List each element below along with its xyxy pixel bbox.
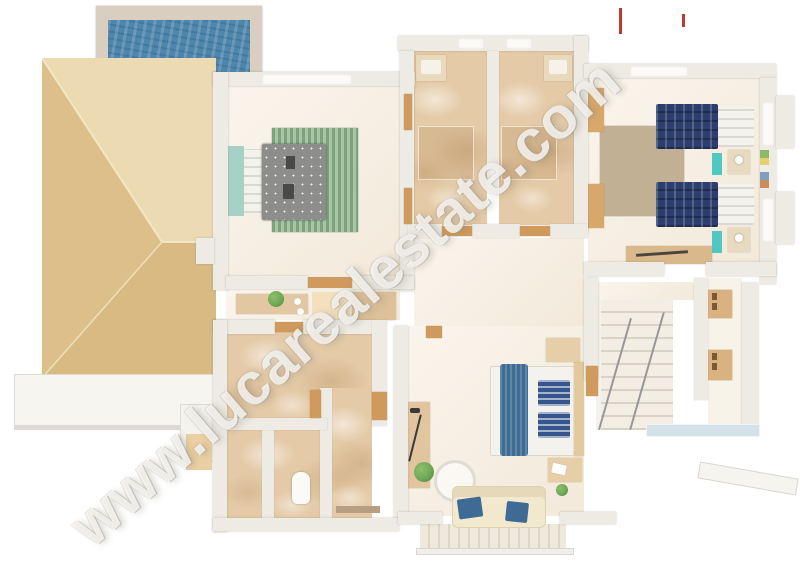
- twin-lamp-2: [735, 234, 743, 242]
- wall-bedroom-bottom-left: [398, 512, 442, 524]
- door-frame-master-bath1: [404, 94, 412, 130]
- twin-dresser-2: [588, 184, 604, 228]
- sofa-pillow-1: [457, 496, 484, 519]
- twin-bed1-pillow: [718, 106, 754, 147]
- balcony-rail: [416, 548, 574, 555]
- desk-plant: [414, 462, 434, 482]
- master-bed-item-2: [283, 184, 294, 199]
- bath1-sink: [421, 60, 441, 74]
- desk-lamp-head: [410, 408, 420, 413]
- wall-bath-bottom-c: [550, 224, 588, 238]
- window-sill-master-left: [196, 238, 214, 264]
- main-nightstand-top: [546, 338, 580, 362]
- wall-bath-partition-1: [262, 428, 274, 518]
- exterior-beam: [697, 461, 798, 495]
- main-bed-pillow-1: [538, 380, 570, 406]
- shower-drain: [336, 506, 380, 513]
- main-bed-headboard: [574, 362, 584, 456]
- door-frame-bath3: [310, 390, 321, 418]
- bathroom5-floor: [332, 388, 372, 518]
- glass-balustrade: [646, 424, 760, 437]
- window-sill-right-2: [776, 192, 794, 244]
- twin-bed1-cover: [656, 104, 718, 149]
- wall-bath-top: [398, 36, 588, 51]
- door-frame-bath2-bottom: [520, 226, 550, 236]
- wall-shelf-2: [708, 350, 732, 380]
- window-sill-right-1: [776, 96, 794, 148]
- wall-master-bottom-left: [226, 276, 308, 289]
- twin-lamp-1: [735, 156, 743, 164]
- twin-bed2-pillow: [718, 184, 754, 225]
- floor-plan-render: www.lucarealestate.com: [0, 0, 800, 563]
- twin-teal-mat-1: [712, 153, 722, 175]
- stair-landing-floor: [598, 282, 694, 300]
- nightstand-plant: [556, 484, 568, 496]
- watermark-accent-dash-1: [619, 8, 622, 34]
- window-right-2: [762, 198, 774, 242]
- main-bed-pillow-2: [538, 412, 570, 438]
- door-frame-main-bedroom: [426, 326, 442, 338]
- door-frame-bath5: [372, 392, 387, 420]
- sofa-pillow-2: [505, 501, 529, 523]
- door-frame-stairwell: [586, 366, 598, 396]
- window-right-1: [762, 102, 774, 146]
- window-bath-top-1: [458, 38, 484, 49]
- wall-bath-partition-2: [320, 388, 332, 518]
- master-bed-item-1: [286, 156, 295, 169]
- wall-twin-bottom-right: [706, 262, 776, 276]
- wall-shelf-1: [708, 290, 732, 318]
- wall-balcony-right: [742, 283, 758, 429]
- wall-master-left: [213, 72, 228, 290]
- bookshelf-right-wall: [760, 150, 769, 188]
- window-master-top: [262, 74, 352, 85]
- wall-stairwell-left: [584, 278, 598, 380]
- main-bed-blue-runner: [500, 364, 528, 456]
- toilet: [292, 472, 310, 504]
- master-bed-pillows: [244, 149, 262, 213]
- wall-bedroom-bottom-right: [560, 512, 616, 524]
- twin-teal-mat-2: [712, 231, 722, 253]
- roof: [42, 58, 216, 378]
- master-bed-headboard: [228, 146, 244, 216]
- wall-main-bedroom-left: [394, 326, 408, 522]
- wall-bottom-exterior: [213, 518, 399, 531]
- window-bath-top-2: [506, 38, 532, 49]
- window-twin-top: [630, 66, 688, 77]
- wall-twin-bottom-left: [584, 262, 664, 276]
- wall-stairwell-shelf: [694, 278, 708, 400]
- twin-bed2-cover: [656, 182, 718, 227]
- watermark-accent-dash-2: [682, 14, 685, 27]
- hall-plant: [268, 291, 284, 307]
